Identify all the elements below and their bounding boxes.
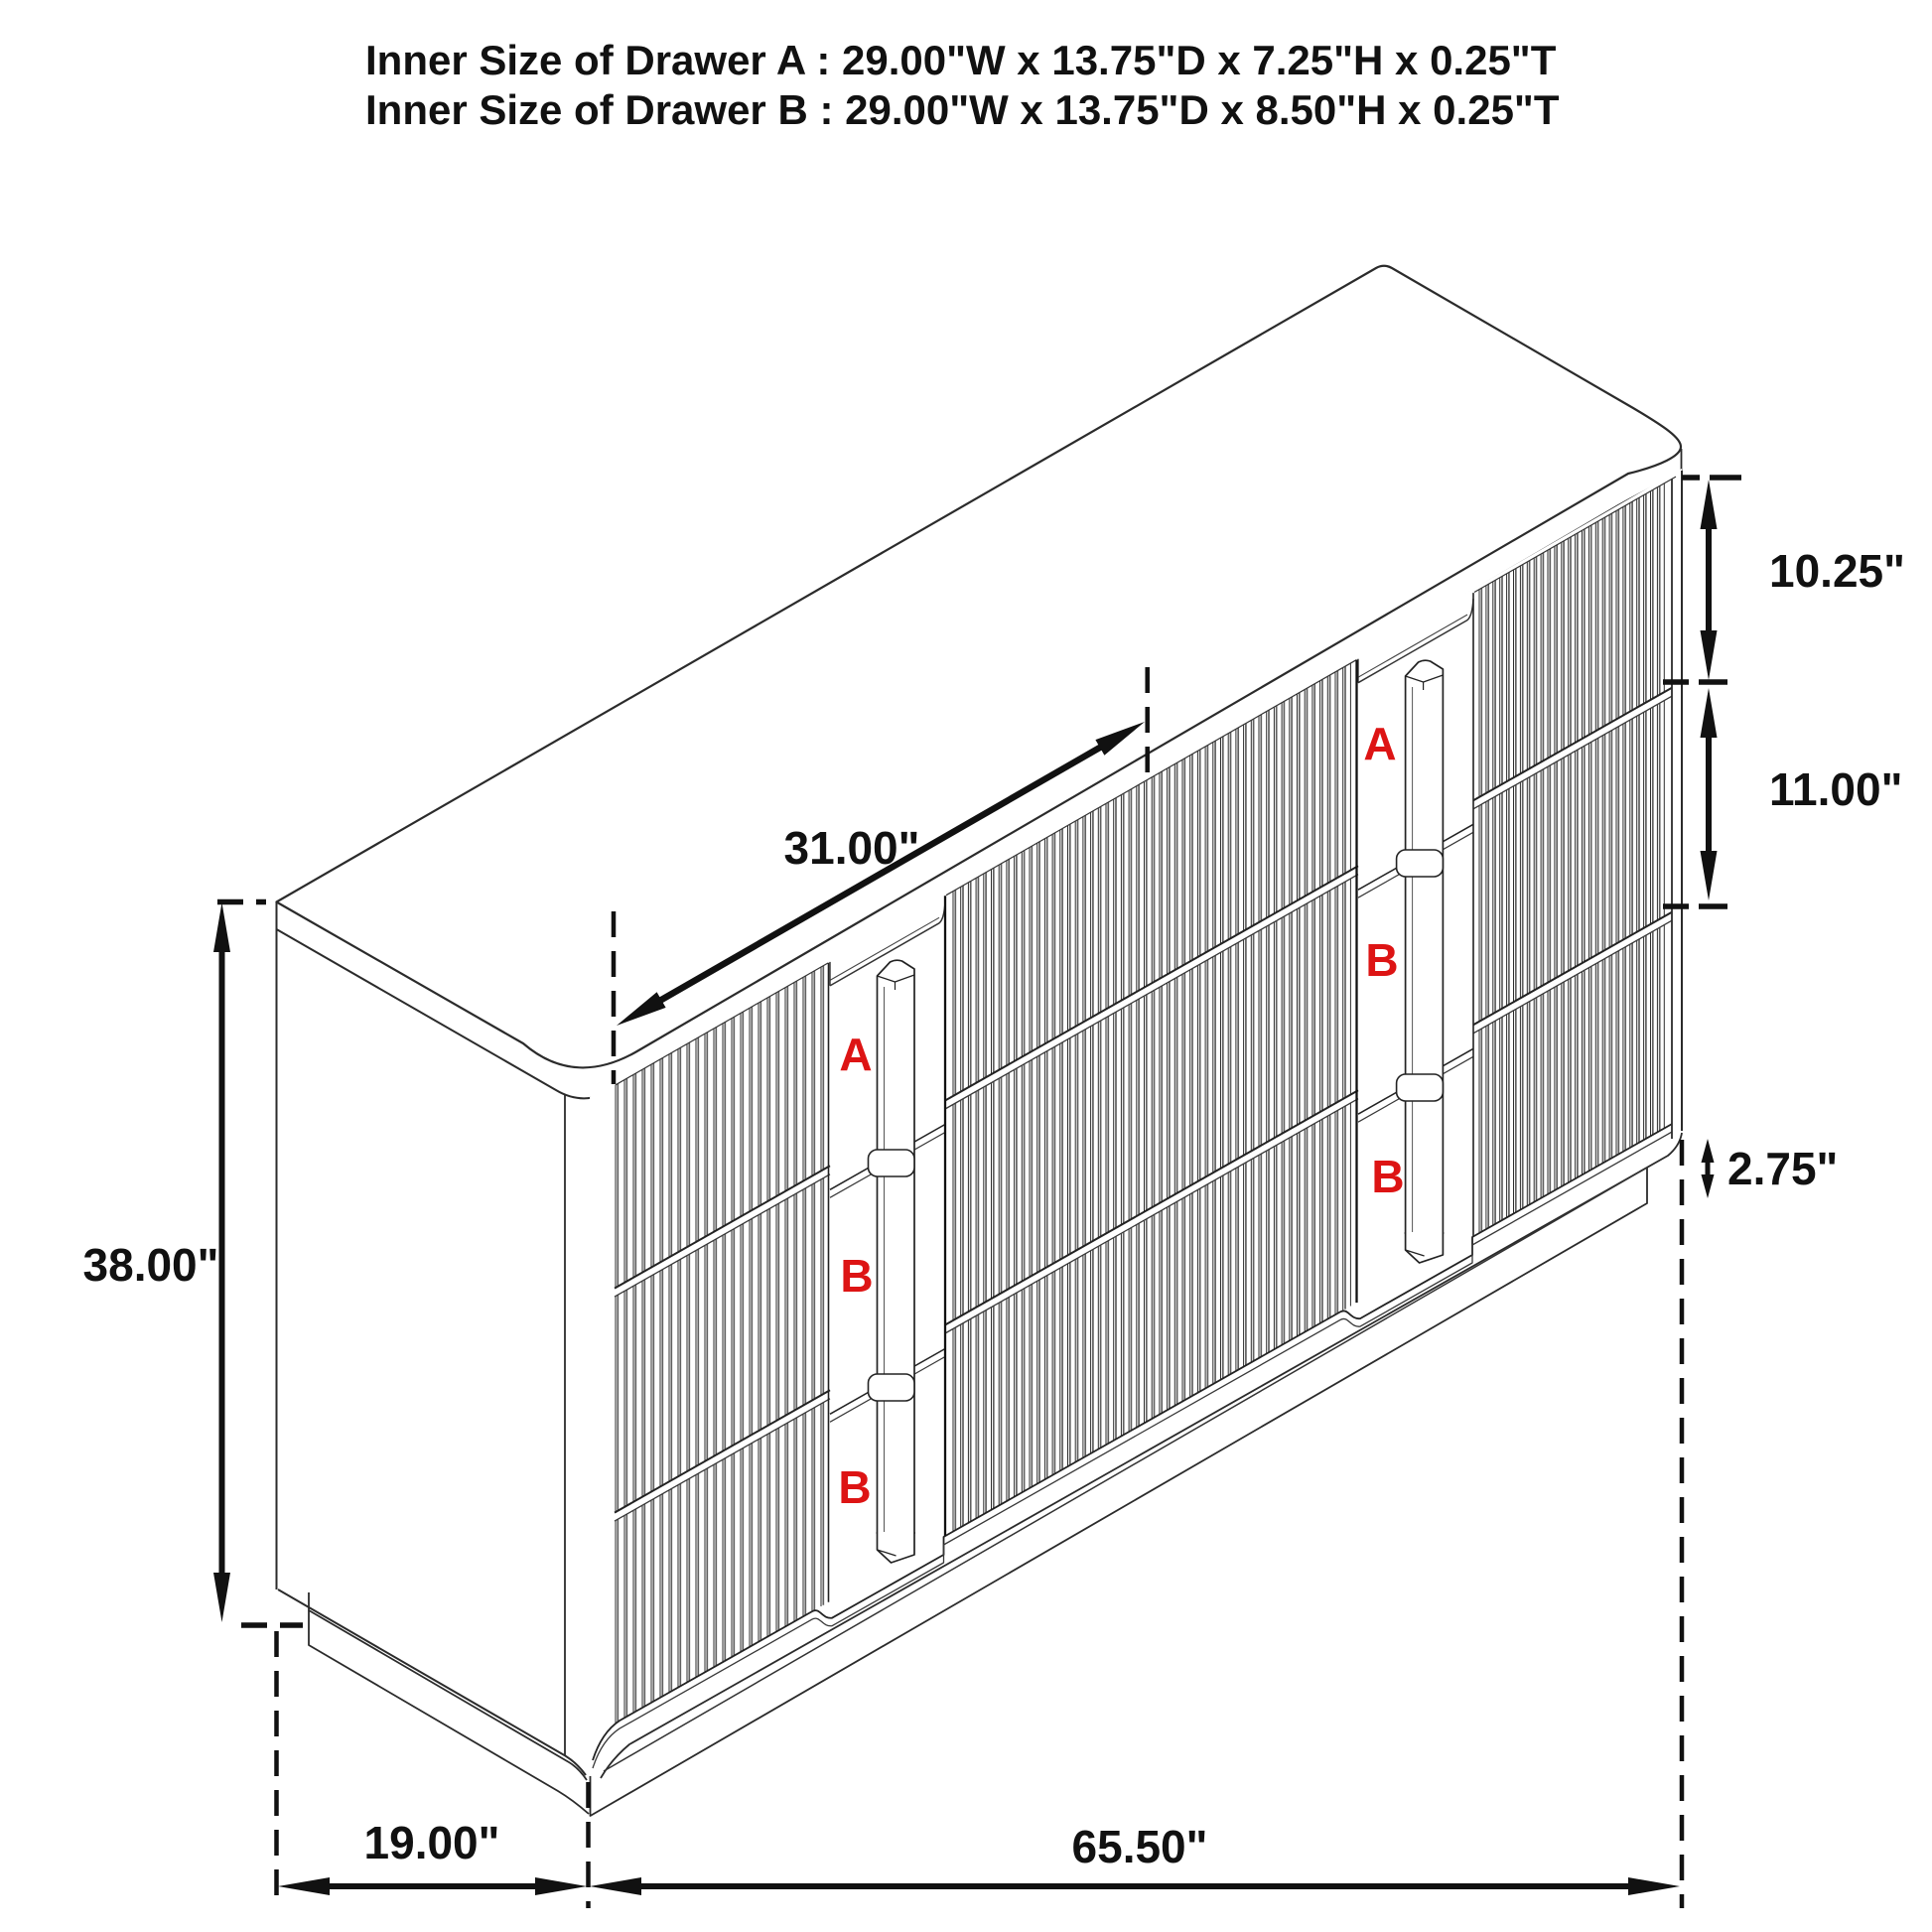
svg-text:A: A [1363, 718, 1396, 769]
svg-text:19.00": 19.00" [364, 1817, 500, 1868]
svg-text:B: B [1371, 1151, 1404, 1202]
svg-text:65.50": 65.50" [1072, 1821, 1208, 1872]
svg-text:38.00": 38.00" [83, 1239, 219, 1291]
svg-text:2.75": 2.75" [1727, 1143, 1838, 1194]
svg-text:B: B [838, 1461, 871, 1513]
svg-text:31.00": 31.00" [784, 822, 920, 874]
svg-text:B: B [1365, 934, 1398, 986]
svg-text:10.25": 10.25" [1769, 545, 1905, 597]
svg-text:11.00": 11.00" [1769, 763, 1902, 815]
svg-text:B: B [840, 1250, 873, 1302]
svg-text:Inner Size of Drawer A : 29.00: Inner Size of Drawer A : 29.00"W x 13.75… [365, 37, 1557, 83]
svg-text:A: A [839, 1029, 872, 1080]
svg-text:Inner Size of Drawer B : 29.00: Inner Size of Drawer B : 29.00"W x 13.75… [365, 86, 1560, 133]
